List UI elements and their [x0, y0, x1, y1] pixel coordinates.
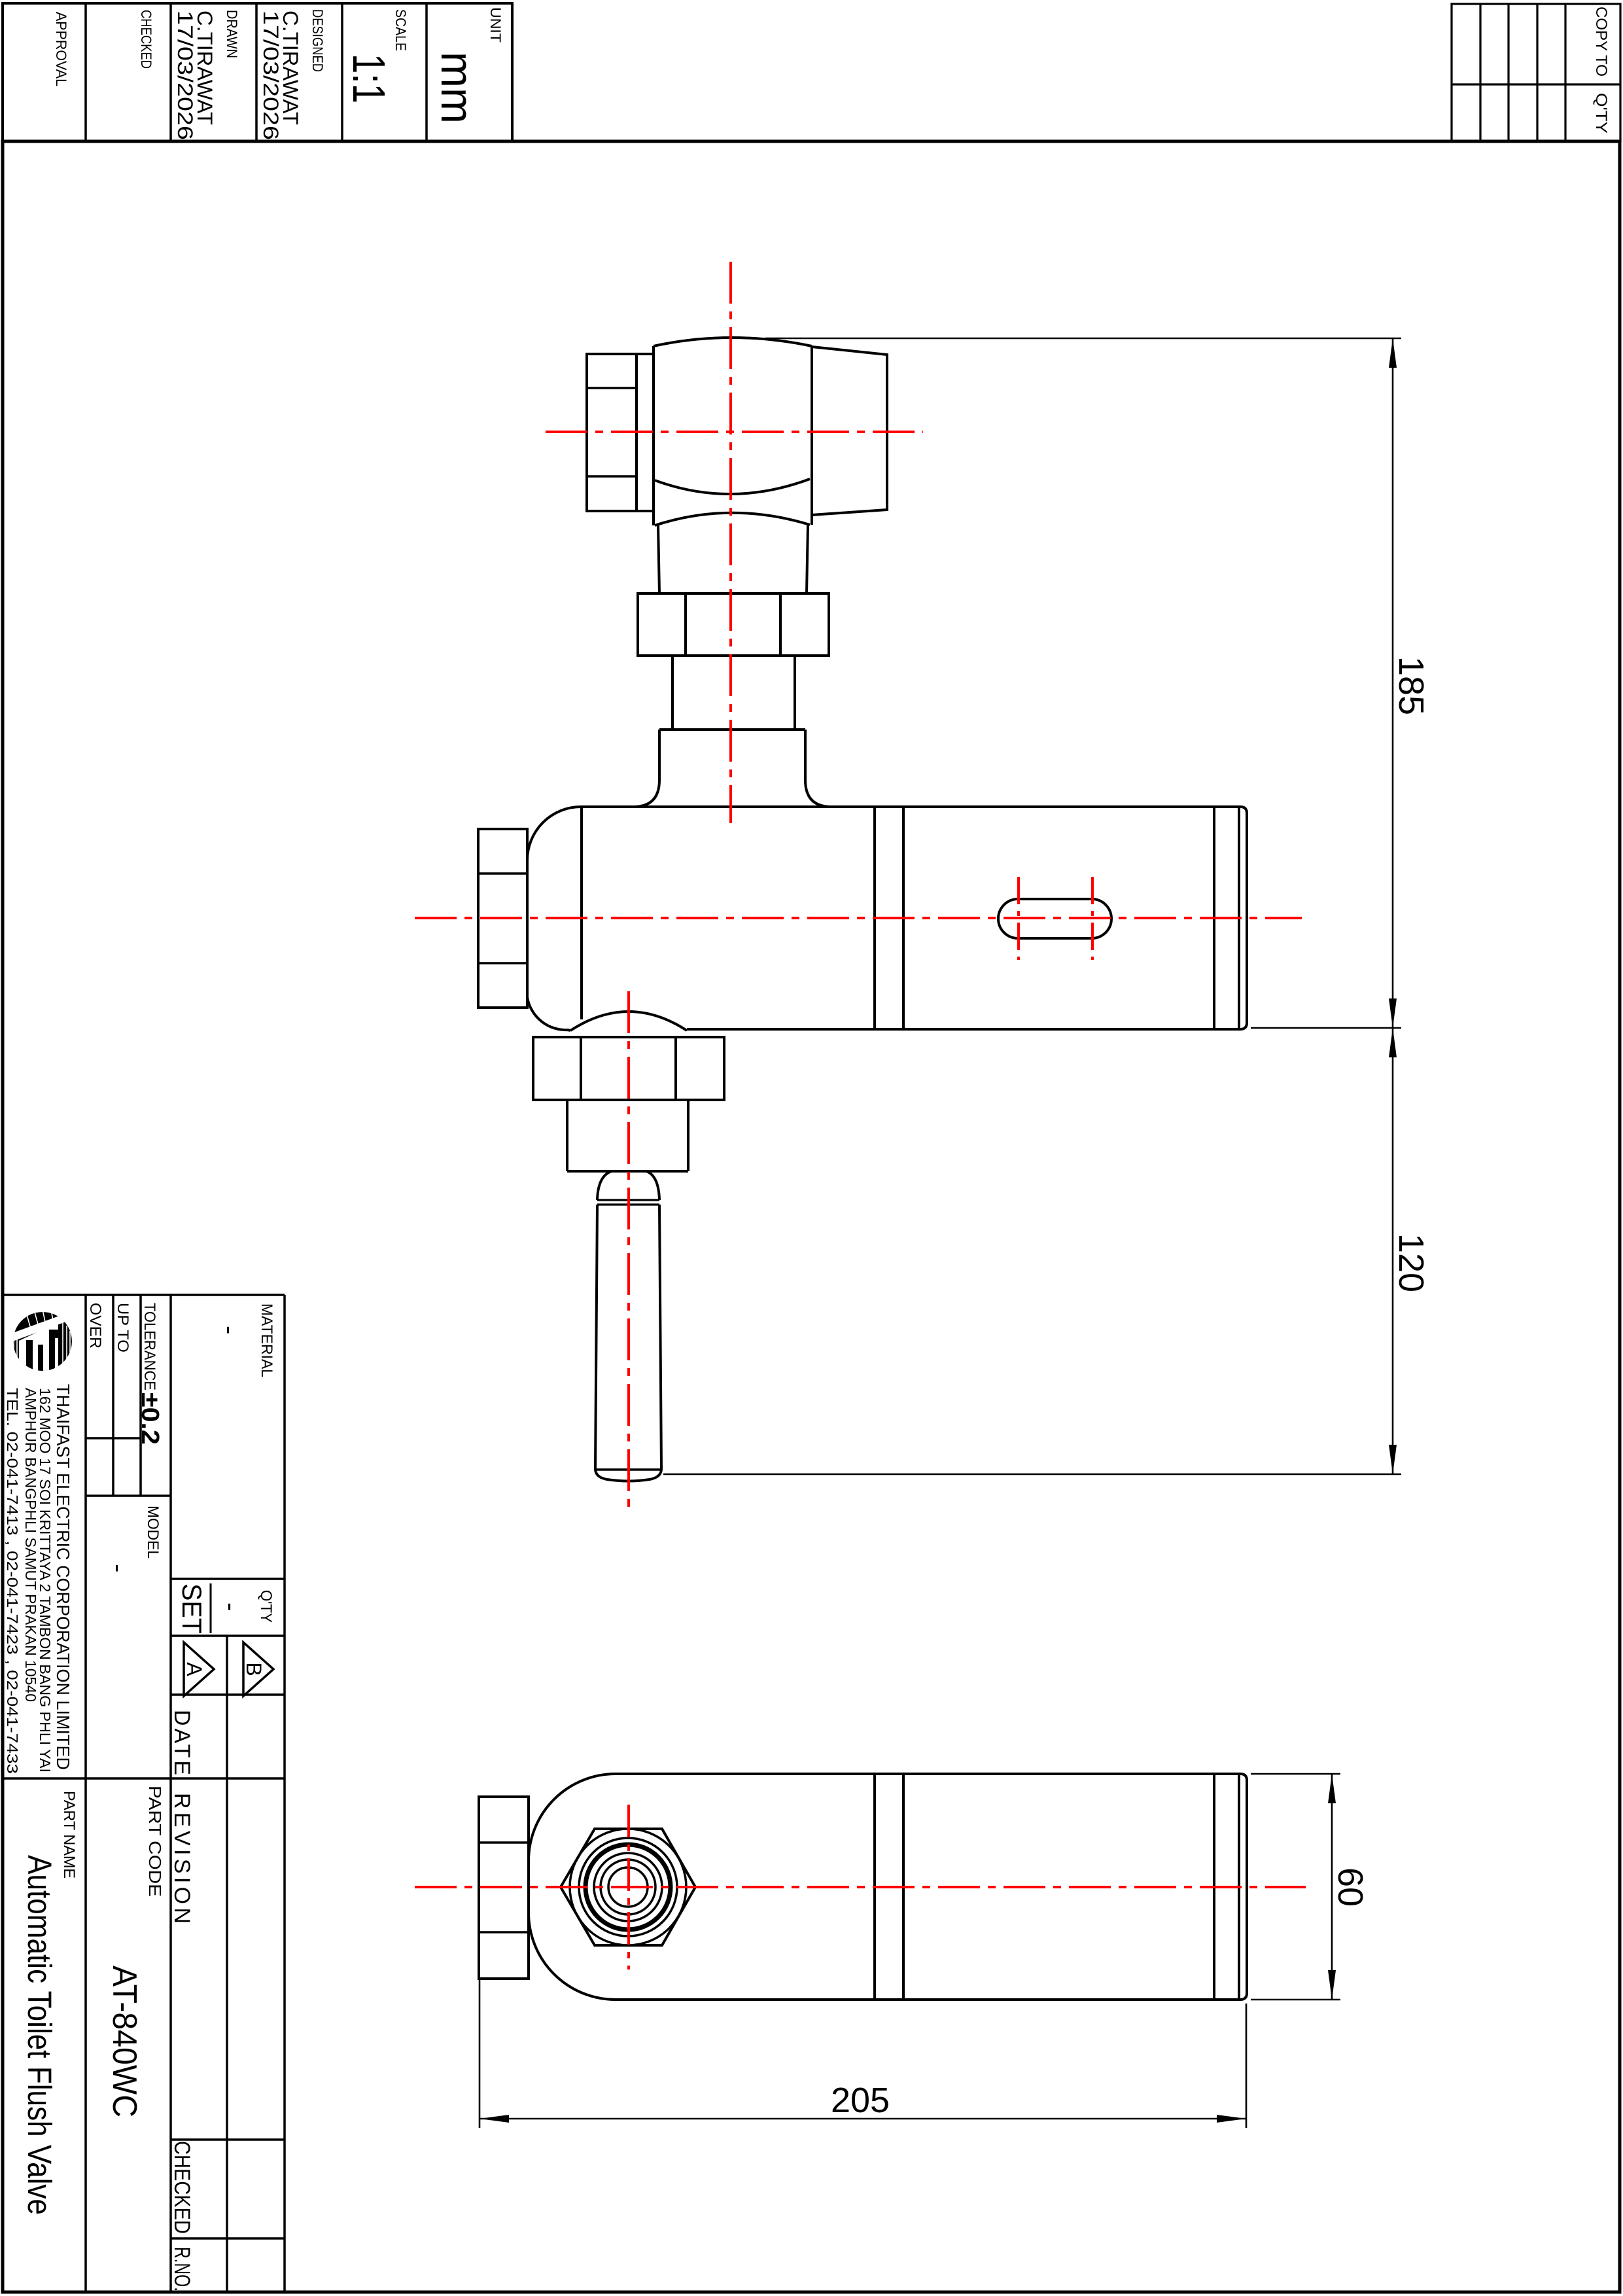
svg-text:CHECKED: CHECKED	[138, 10, 154, 69]
svg-text:PART CODE: PART CODE	[145, 1786, 165, 1897]
svg-text:205: 205	[831, 2081, 890, 2120]
svg-text:Q'TY: Q'TY	[1592, 93, 1610, 133]
svg-text:SET: SET	[177, 1583, 207, 1634]
svg-text:120: 120	[1391, 1233, 1431, 1292]
svg-text:OVER: OVER	[86, 1303, 104, 1349]
svg-text:Automatic Toilet Flush Valve: Automatic Toilet Flush Valve	[21, 1855, 58, 2215]
svg-text:TEL. 02-041-7413 , 02-041-7423: TEL. 02-041-7413 , 02-041-7423 , 02-041-…	[4, 1388, 21, 1774]
svg-text:UP TO: UP TO	[114, 1303, 131, 1352]
svg-text:MODEL: MODEL	[144, 1506, 162, 1559]
svg-text:SCALE: SCALE	[393, 9, 409, 51]
svg-text:-: -	[217, 1602, 245, 1611]
svg-text:THAIFAST ELECTRIC CORPORATION: THAIFAST ELECTRIC CORPORATION LIMITED	[53, 1384, 73, 1770]
svg-text:Q'TY: Q'TY	[257, 1590, 275, 1623]
svg-text:AT-840WC: AT-840WC	[105, 1966, 143, 2117]
svg-text:-: -	[215, 1326, 244, 1334]
svg-text:R.NO.: R.NO.	[169, 2247, 194, 2291]
svg-text:APPROVAL: APPROVAL	[53, 12, 69, 86]
svg-text:REVISION: REVISION	[169, 1793, 194, 1924]
svg-text:UNIT: UNIT	[487, 7, 504, 43]
svg-text:B: B	[242, 1662, 266, 1676]
svg-text:COPY TO: COPY TO	[1592, 7, 1610, 77]
svg-text:A: A	[183, 1662, 206, 1676]
svg-text:60: 60	[1331, 1867, 1370, 1907]
svg-text:17/03/2026: 17/03/2026	[259, 10, 283, 140]
svg-text:mm: mm	[432, 52, 483, 124]
svg-text:±0.2: ±0.2	[136, 1392, 164, 1445]
svg-text:17/03/2026: 17/03/2026	[173, 10, 197, 140]
svg-text:DRAWN: DRAWN	[224, 10, 240, 58]
svg-text:MATERIAL: MATERIAL	[258, 1303, 275, 1377]
svg-text:DESIGNED: DESIGNED	[309, 9, 326, 72]
svg-text:PART NAME: PART NAME	[60, 1791, 78, 1879]
svg-text:1:1: 1:1	[343, 54, 394, 103]
svg-text:-: -	[104, 1564, 133, 1572]
svg-text:AMPHUR BANGPHLI SAMUT PRAKAN 1: AMPHUR BANGPHLI SAMUT PRAKAN 10540	[22, 1388, 39, 1702]
svg-text:CHECKED: CHECKED	[169, 2141, 194, 2234]
svg-text:TOLERANCE: TOLERANCE	[141, 1303, 158, 1390]
svg-text:185: 185	[1391, 656, 1431, 715]
